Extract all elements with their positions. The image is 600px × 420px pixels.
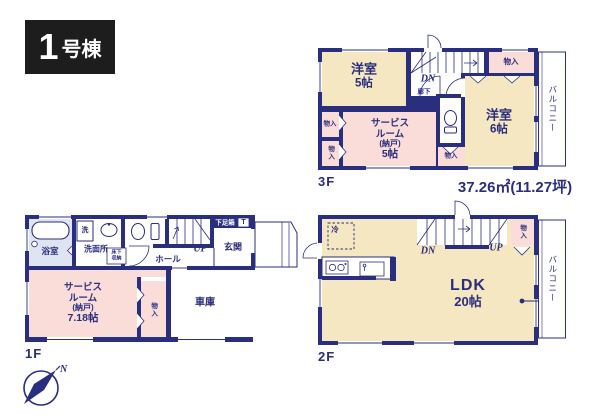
floor-label-3f: 3F [318, 174, 335, 189]
sink-icon [101, 223, 117, 236]
floorplan-3f: 洋室 5帖 洋室 6帖 サービス ルーム (納戸) 5帖 物入 物入 物入 物入… [318, 48, 566, 170]
room-label-bedroom6: 洋室 6帖 [486, 108, 512, 135]
garage-label: 車庫 [195, 297, 215, 308]
service3f-l4: 5帖 [371, 149, 409, 161]
compass-icon: N [16, 360, 72, 412]
stairs-dn-label-2f: DN [421, 245, 435, 256]
balcony-label-3f: バルコニー [547, 85, 557, 133]
floor-storage-label: 床下 収納 [111, 250, 121, 261]
refrigerator-label: 冷 [331, 226, 339, 234]
floorplan-1f: 浴室 洗 洗面所 床下 収納 ホール UP 下足箱 T 玄関 サービス ルーム … [25, 215, 300, 345]
ldk-name: LDK [450, 277, 486, 295]
room-label-ldk: LDK 20帖 [450, 277, 486, 309]
stairs-up-label-2f: UP [489, 242, 502, 253]
floorplan-2f-drawing [298, 199, 588, 351]
closet-label-2f: 物入 [518, 225, 525, 240]
room-label-bedroom5: 洋室 5帖 [351, 62, 377, 89]
unit-number: 1 [38, 26, 58, 68]
floor-storage-l2: 収納 [111, 256, 121, 262]
floor-label-1f: 1F [25, 346, 42, 361]
closet-label-bottom-3f: 物入 [445, 152, 458, 159]
floor-area-text: 37.26㎡(11.27坪) [430, 176, 600, 197]
washroom-label: 洗面所 [84, 246, 108, 255]
stairs-dn-label-3f: DN [421, 73, 435, 84]
stairs-up-label-1f: UP [193, 243, 206, 254]
closet-label-left-b-3f: 物入 [326, 146, 333, 161]
closet-label-1f: 物入 [149, 303, 156, 318]
bedroom6-size: 6帖 [486, 123, 512, 136]
stove-icon [326, 261, 348, 274]
floor-label-2f: 2F [318, 349, 335, 364]
toilet-icon-3f [445, 111, 457, 134]
ldk-size: 20帖 [450, 295, 486, 310]
bedroom5-size: 5帖 [351, 77, 377, 90]
service1f-l4: 7.18帖 [64, 313, 102, 325]
bath-label: 浴室 [41, 247, 58, 257]
floorplan-sheet: 1 号棟 [0, 0, 600, 420]
unit-title-badge: 1 号棟 [25, 20, 115, 74]
hall-label: ホール [155, 255, 181, 265]
porch-1f [255, 222, 297, 267]
toilet-mark-label: T [241, 219, 245, 227]
compass-north-label: N [59, 364, 68, 375]
closet-label-left-a-3f: 物入 [324, 120, 337, 127]
bedroom5-name: 洋室 [351, 62, 377, 77]
corridor-label: 廊下 [418, 88, 431, 95]
shoebox-label: 下足箱 [215, 219, 235, 226]
floorplan-2f: 冷 DN UP 物入 LDK 20帖 バルコニー 2F [318, 215, 566, 345]
kitchen-counter-icon [322, 257, 396, 281]
bedroom6-name: 洋室 [486, 108, 512, 123]
washer-label: 洗 [82, 227, 89, 235]
floorplan-3f-drawing [318, 32, 568, 182]
room-label-service-room-1f: サービス ルーム (納戸) 7.18帖 [64, 283, 102, 325]
kitchen-sink-icon [360, 262, 384, 276]
closet-label-top-3f: 物入 [504, 58, 519, 66]
balcony-label-2f: バルコニー [547, 255, 557, 303]
room-label-service-room-3f: サービス ルーム (納戸) 5帖 [371, 119, 409, 161]
unit-suffix: 号棟 [62, 33, 102, 62]
entrance-label: 玄関 [224, 242, 242, 252]
